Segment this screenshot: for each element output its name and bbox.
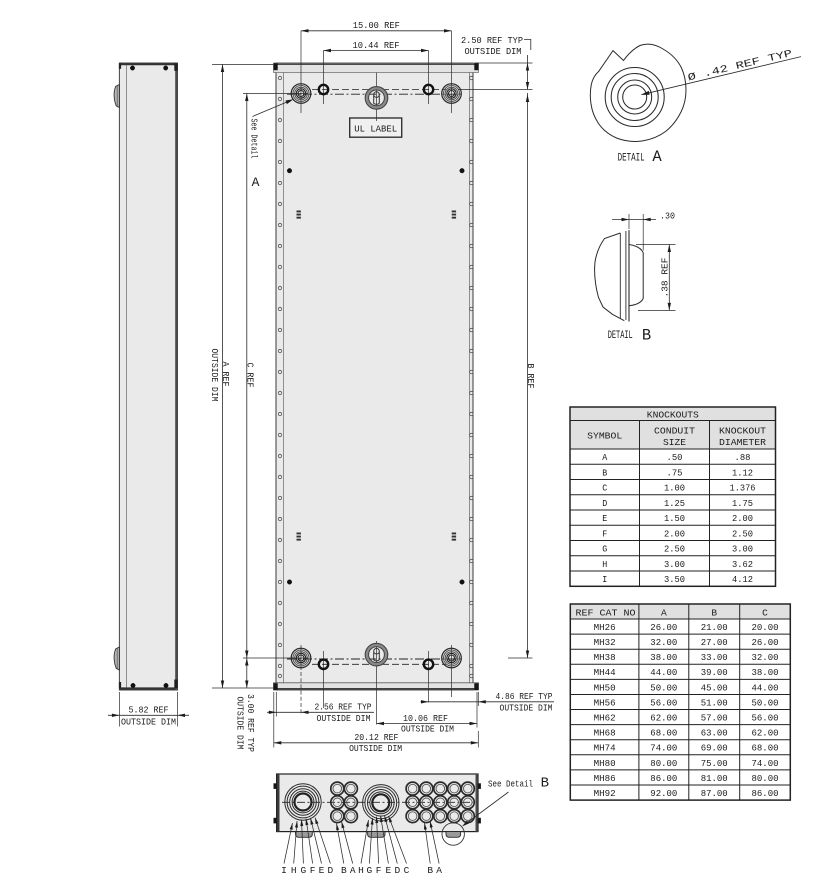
svg-text:44.00: 44.00: [752, 682, 779, 693]
svg-text:MH38: MH38: [594, 652, 616, 663]
svg-text:21.00: 21.00: [701, 622, 728, 633]
svg-text:1.50: 1.50: [664, 513, 685, 524]
svg-text:DETAIL: DETAIL: [618, 153, 645, 165]
svg-text:MH44: MH44: [594, 667, 616, 678]
svg-text:B: B: [541, 776, 549, 792]
svg-text:92.00: 92.00: [650, 788, 677, 799]
svg-text:.50: .50: [667, 452, 683, 463]
svg-text:56.00: 56.00: [650, 697, 677, 708]
svg-text:32.00: 32.00: [650, 637, 677, 648]
svg-text:A REF: A REF: [220, 362, 231, 387]
svg-text:20.00: 20.00: [752, 622, 779, 633]
svg-text:MH86: MH86: [594, 773, 616, 784]
svg-text:DIAMETER: DIAMETER: [719, 437, 766, 448]
svg-text:See Detail: See Detail: [488, 778, 533, 789]
svg-text:87.00: 87.00: [701, 788, 728, 799]
svg-text:G: G: [602, 544, 607, 555]
svg-text:27.00: 27.00: [701, 637, 728, 648]
svg-text:33.00: 33.00: [701, 652, 728, 663]
svg-text:OUTSIDE DIM: OUTSIDE DIM: [349, 743, 402, 754]
svg-text:63.00: 63.00: [701, 728, 728, 739]
svg-text:SYMBOL: SYMBOL: [587, 430, 622, 441]
svg-text:B: B: [711, 608, 717, 619]
svg-text:C: C: [762, 608, 768, 619]
svg-text:A: A: [661, 608, 667, 619]
svg-text:C: C: [602, 483, 607, 494]
svg-text:E: E: [602, 513, 607, 524]
svg-text:3.50: 3.50: [664, 574, 685, 585]
svg-text:10.06 REF: 10.06 REF: [403, 713, 448, 724]
svg-text:KNOCKOUTS: KNOCKOUTS: [647, 410, 699, 421]
svg-text:D: D: [328, 865, 334, 876]
svg-text:A: A: [252, 175, 260, 190]
svg-text:H: H: [602, 559, 607, 570]
svg-text:OUTSIDE DIM: OUTSIDE DIM: [401, 723, 454, 734]
svg-text:51.00: 51.00: [701, 697, 728, 708]
svg-text:REF CAT NO: REF CAT NO: [576, 608, 636, 619]
svg-text:F: F: [376, 865, 382, 876]
svg-text:26.00: 26.00: [650, 622, 677, 633]
svg-text:.38 REF: .38 REF: [659, 257, 670, 297]
svg-text:H: H: [291, 865, 297, 876]
svg-text:A: A: [602, 452, 607, 463]
svg-text:KNOCKOUT: KNOCKOUT: [719, 426, 766, 437]
svg-text:D: D: [602, 498, 607, 509]
svg-text:32.00: 32.00: [752, 652, 779, 663]
svg-text:5.82 REF: 5.82 REF: [129, 705, 169, 716]
svg-text:80.00: 80.00: [752, 773, 779, 784]
svg-text:I: I: [602, 574, 607, 585]
svg-text:2.50 REF TYP: 2.50 REF TYP: [461, 35, 523, 46]
svg-text:MH32: MH32: [594, 637, 616, 648]
svg-text:A: A: [350, 865, 356, 876]
svg-text:62.00: 62.00: [752, 728, 779, 739]
svg-text:F: F: [602, 528, 607, 539]
svg-text:20.12 REF: 20.12 REF: [354, 732, 398, 743]
svg-text:MH74: MH74: [594, 743, 616, 754]
svg-text:OUTSIDE DIM: OUTSIDE DIM: [235, 697, 246, 750]
svg-text:I: I: [281, 865, 287, 876]
svg-text:44.00: 44.00: [650, 667, 677, 678]
svg-text:74.00: 74.00: [650, 743, 677, 754]
svg-text:OUTSIDE DIM: OUTSIDE DIM: [121, 717, 176, 728]
svg-text:B: B: [427, 865, 433, 876]
svg-text:68.00: 68.00: [752, 743, 779, 754]
svg-text:H: H: [358, 865, 364, 876]
svg-text:2.00: 2.00: [732, 513, 753, 524]
svg-text:57.00: 57.00: [701, 713, 728, 724]
svg-text:MH56: MH56: [594, 697, 616, 708]
svg-text:1.00: 1.00: [664, 483, 685, 494]
svg-text:OUTSIDE DIM: OUTSIDE DIM: [500, 703, 553, 714]
svg-text:E: E: [386, 865, 392, 876]
svg-text:50.00: 50.00: [650, 682, 677, 693]
svg-text:26.00: 26.00: [752, 637, 779, 648]
svg-text:E: E: [319, 865, 325, 876]
svg-text:MH50: MH50: [594, 682, 616, 693]
svg-text:38.00: 38.00: [650, 652, 677, 663]
svg-text:C REF: C REF: [244, 363, 255, 388]
svg-text:B REF: B REF: [525, 364, 536, 389]
svg-text:D: D: [394, 865, 400, 876]
svg-text:62.00: 62.00: [650, 713, 677, 724]
svg-text:DETAIL: DETAIL: [608, 330, 633, 342]
svg-text:OUTSIDE DIM: OUTSIDE DIM: [209, 349, 220, 402]
svg-text:MH92: MH92: [594, 788, 616, 799]
svg-text:F: F: [310, 865, 316, 876]
svg-text:SIZE: SIZE: [663, 437, 686, 448]
svg-text:3.00: 3.00: [732, 544, 753, 555]
svg-text:2.50: 2.50: [664, 544, 685, 555]
svg-text:OUTSIDE DIM: OUTSIDE DIM: [317, 713, 371, 724]
svg-text:G: G: [301, 865, 307, 876]
svg-text:C: C: [404, 865, 410, 876]
svg-text:50.00: 50.00: [752, 697, 779, 708]
svg-text:B: B: [642, 327, 651, 345]
svg-text:15.00 REF: 15.00 REF: [353, 20, 400, 31]
svg-text:10.44 REF: 10.44 REF: [353, 40, 400, 51]
svg-text:CONDUIT: CONDUIT: [654, 426, 695, 437]
svg-text:UL LABEL: UL LABEL: [354, 124, 397, 135]
svg-text:MH26: MH26: [594, 622, 616, 633]
svg-text:3.62: 3.62: [732, 559, 753, 570]
svg-text:69.00: 69.00: [701, 743, 728, 754]
svg-text:68.00: 68.00: [650, 728, 677, 739]
svg-text:MH68: MH68: [594, 728, 616, 739]
svg-text:45.00: 45.00: [701, 682, 728, 693]
svg-text:3.00: 3.00: [664, 559, 685, 570]
svg-text:86.00: 86.00: [752, 788, 779, 799]
svg-text:.75: .75: [667, 467, 683, 478]
svg-text:80.00: 80.00: [650, 758, 677, 769]
svg-text:1.12: 1.12: [732, 467, 753, 478]
svg-text:B: B: [602, 467, 607, 478]
svg-text:2.00: 2.00: [664, 528, 685, 539]
svg-text:1.25: 1.25: [664, 498, 685, 509]
svg-text:4.12: 4.12: [732, 574, 753, 585]
svg-text:B: B: [341, 865, 347, 876]
svg-text:.88: .88: [735, 452, 751, 463]
svg-text:1.376: 1.376: [730, 483, 756, 494]
svg-text:1.75: 1.75: [732, 498, 753, 509]
svg-text:2.56 REF TYP: 2.56 REF TYP: [315, 701, 372, 712]
svg-text:75.00: 75.00: [701, 758, 728, 769]
svg-text:56.00: 56.00: [752, 713, 779, 724]
svg-text:4.86 REF TYP: 4.86 REF TYP: [496, 691, 553, 702]
svg-text:See Detail: See Detail: [249, 119, 259, 159]
svg-text:86.00: 86.00: [650, 773, 677, 784]
svg-text:MH62: MH62: [594, 713, 616, 724]
svg-text:2.50: 2.50: [732, 528, 753, 539]
svg-text:G: G: [367, 865, 373, 876]
svg-text:.30: .30: [660, 210, 675, 221]
svg-text:39.00: 39.00: [701, 667, 728, 678]
svg-text:81.00: 81.00: [701, 773, 728, 784]
svg-text:OUTSIDE DIM: OUTSIDE DIM: [465, 46, 522, 57]
svg-text:MH80: MH80: [594, 758, 616, 769]
svg-text:74.00: 74.00: [752, 758, 779, 769]
svg-text:38.00: 38.00: [752, 667, 779, 678]
svg-text:A: A: [652, 148, 662, 166]
svg-text:A: A: [436, 865, 442, 876]
